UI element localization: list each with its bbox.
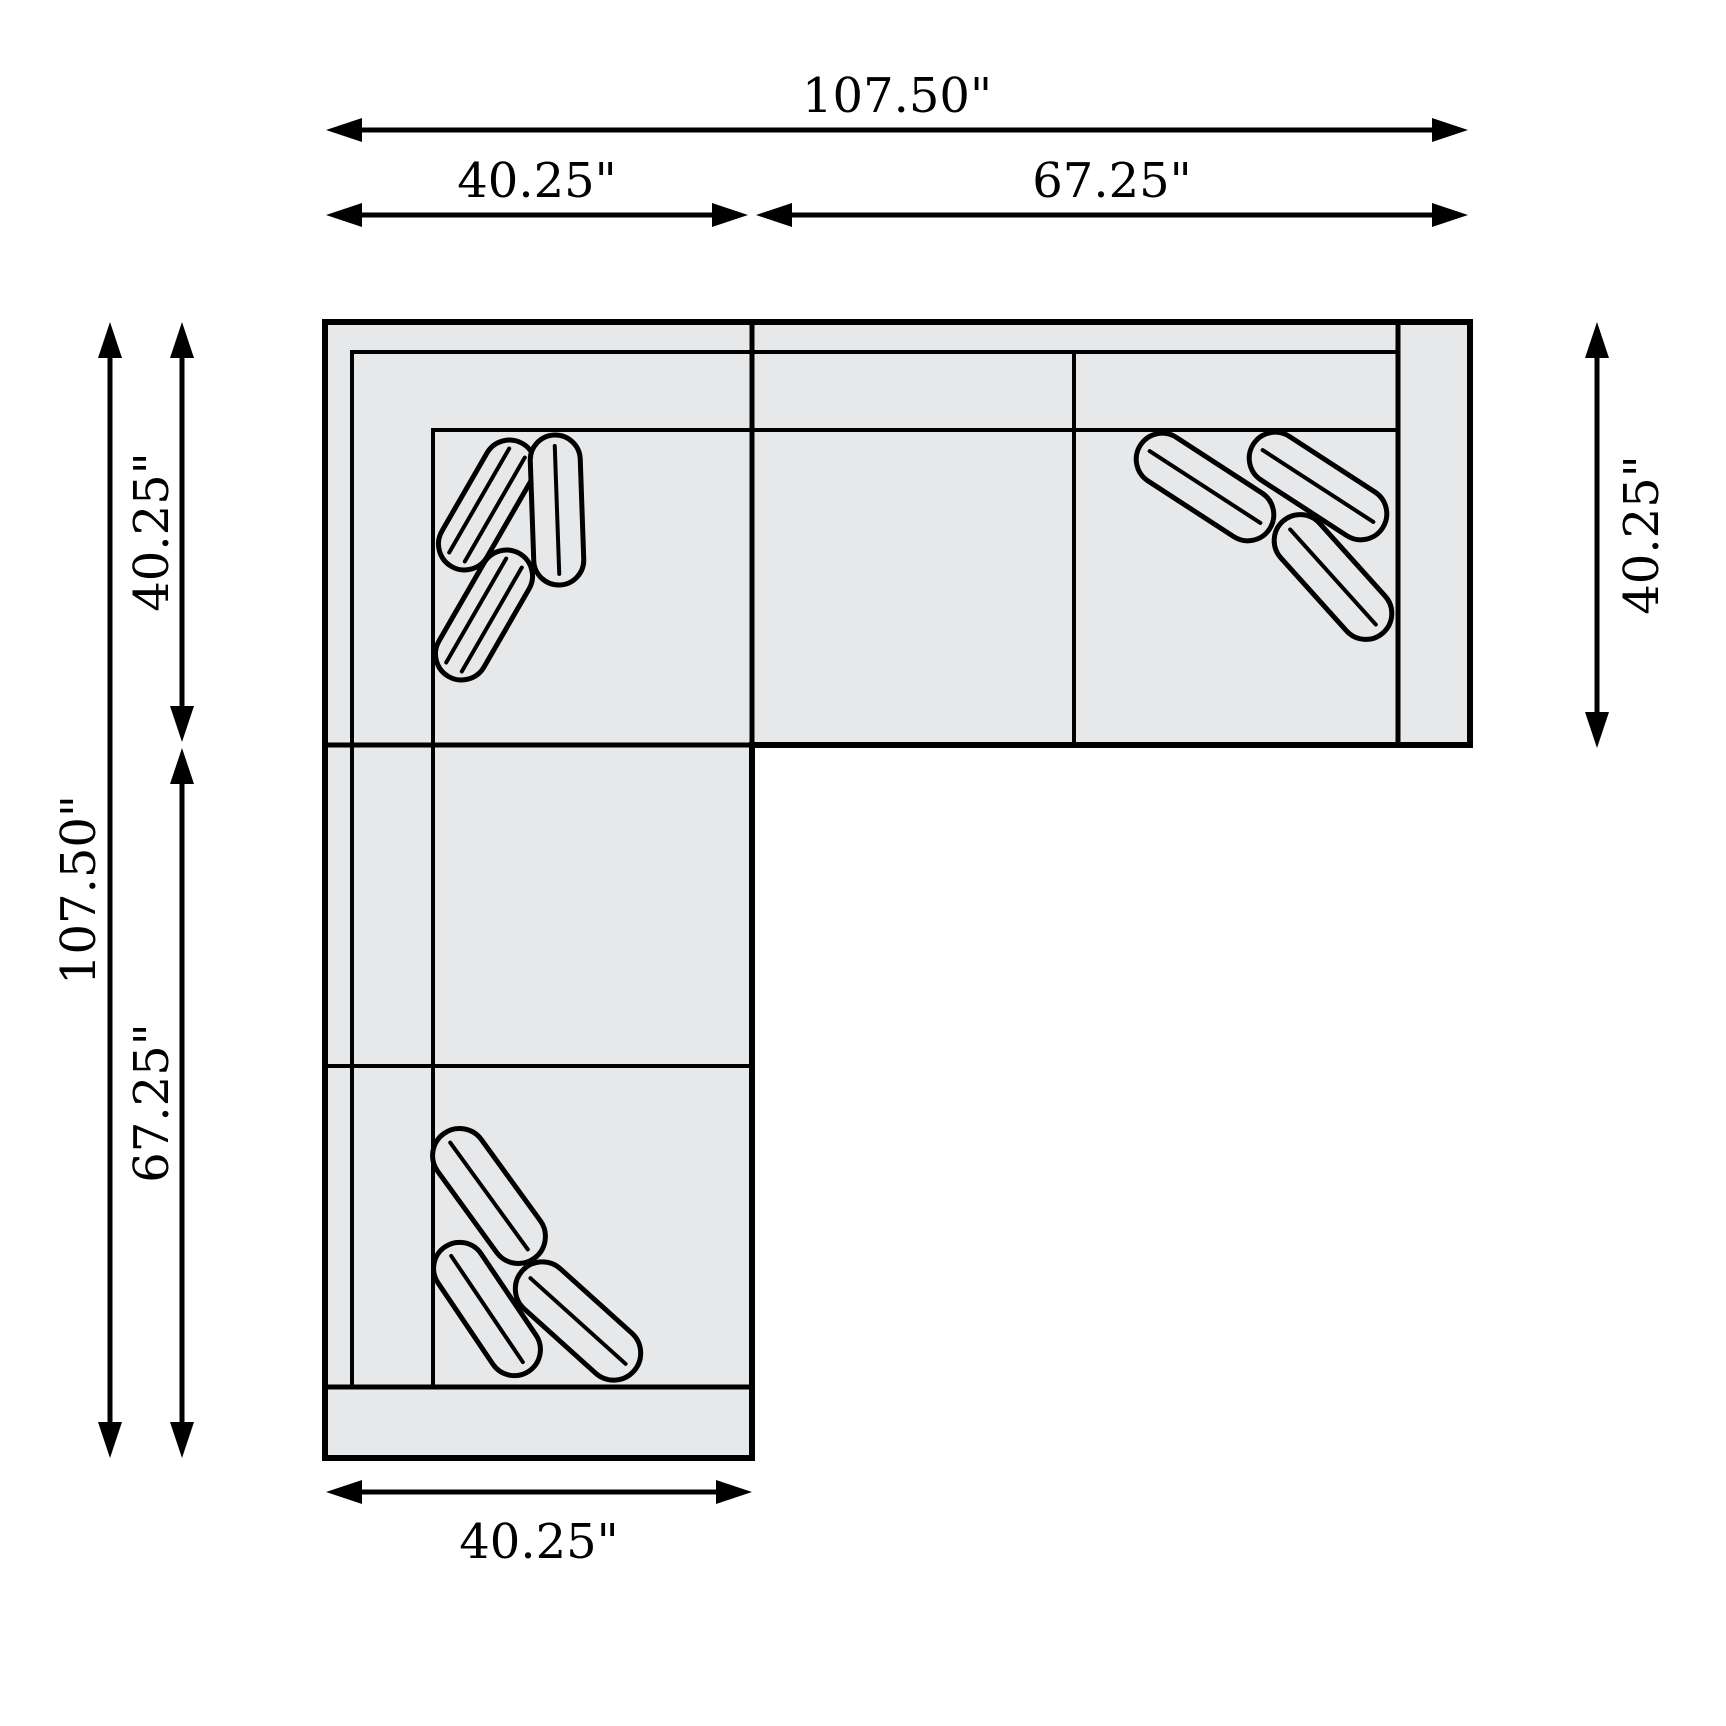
arrowhead-up-icon: [1585, 322, 1609, 358]
floor-plan-canvas: 107.50" 40.25" 67.25" 107.50" 40.25" 67.…: [0, 0, 1726, 1726]
dimension-label: 107.50": [802, 68, 992, 124]
pillow-icon: [529, 434, 584, 586]
arrowhead-down-icon: [1585, 712, 1609, 748]
dimension-right-depth: 40.25": [1585, 322, 1670, 748]
dimension-label: 40.25": [124, 452, 180, 612]
arrowhead-left-icon: [326, 203, 362, 227]
arrowhead-left-icon: [326, 118, 362, 142]
arrowhead-right-icon: [1432, 118, 1468, 142]
dimension-label: 67.25": [124, 1023, 180, 1183]
arrowhead-down-icon: [170, 1422, 194, 1458]
floor-plan-svg: 107.50" 40.25" 67.25" 107.50" 40.25" 67.…: [0, 0, 1726, 1726]
dimension-top-left-section: 40.25": [326, 153, 748, 227]
arrowhead-right-icon: [712, 203, 748, 227]
arrowhead-up-icon: [170, 748, 194, 784]
dimension-label: 67.25": [1032, 153, 1192, 209]
arrowhead-right-icon: [716, 1480, 752, 1504]
arrowhead-left-icon: [326, 1480, 362, 1504]
arrowhead-down-icon: [98, 1422, 122, 1458]
dimension-label: 107.50": [51, 795, 107, 985]
dimension-label: 40.25": [459, 1514, 619, 1570]
dimension-left-top-section: 40.25": [124, 322, 194, 742]
arrowhead-left-icon: [756, 203, 792, 227]
arrowhead-up-icon: [98, 322, 122, 358]
sectional-sofa: [325, 322, 1470, 1458]
dimension-left-overall-height: 107.50": [51, 322, 122, 1458]
arrowhead-up-icon: [170, 322, 194, 358]
dimension-top-right-section: 67.25": [756, 153, 1468, 227]
dimension-left-bottom-section: 67.25": [124, 748, 194, 1458]
dimension-label: 40.25": [1614, 455, 1670, 615]
dimension-top-overall-width: 107.50": [326, 68, 1468, 142]
arrowhead-right-icon: [1432, 203, 1468, 227]
arrowhead-down-icon: [170, 706, 194, 742]
dimension-bottom-depth: 40.25": [326, 1480, 752, 1570]
dimension-label: 40.25": [457, 153, 617, 209]
